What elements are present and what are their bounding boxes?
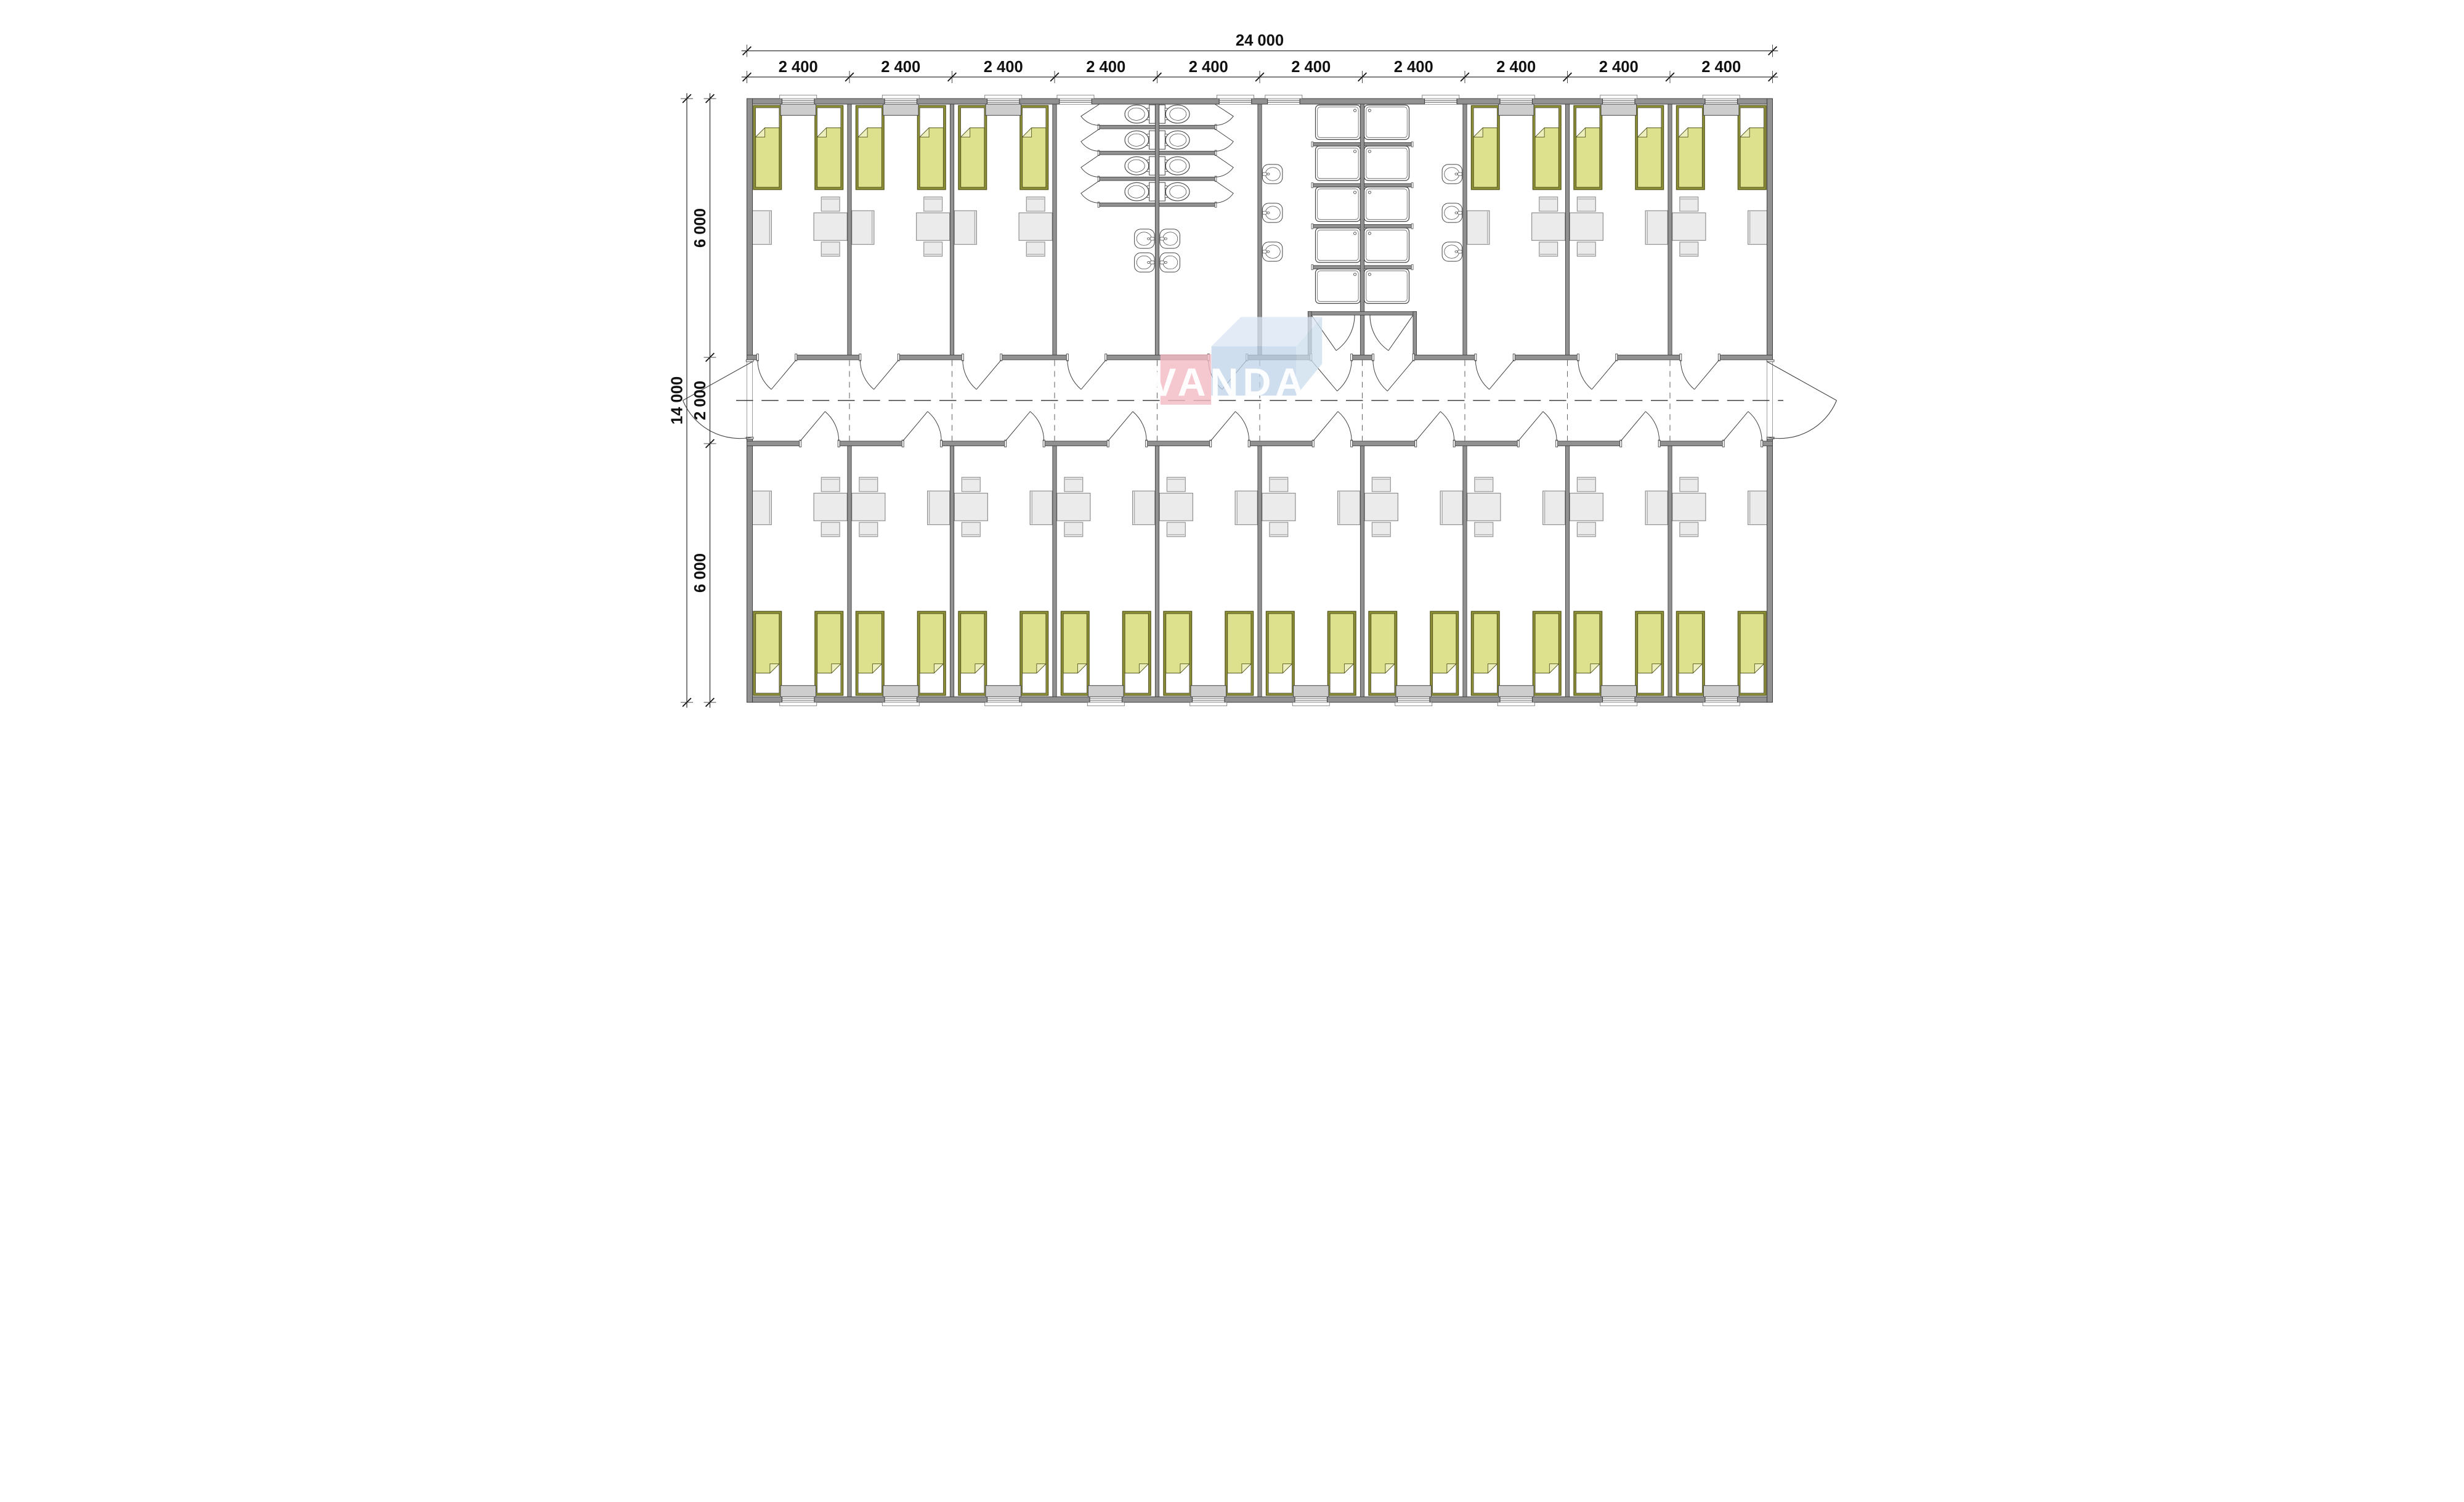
radiator [1601, 686, 1637, 697]
corridor-wall-segment [1249, 441, 1313, 446]
window-sill [882, 702, 919, 706]
toilet [1159, 182, 1189, 201]
door-leaf [903, 412, 928, 441]
door-leaf [771, 360, 796, 389]
radiator [986, 686, 1021, 697]
door-jamb [795, 354, 797, 361]
window [987, 99, 1020, 104]
corridor-wall-segment [899, 355, 963, 360]
table [1467, 493, 1501, 521]
door-jamb [1513, 354, 1515, 361]
desk [1645, 491, 1668, 525]
window-sill [882, 95, 919, 99]
table [1532, 213, 1565, 241]
window-sill [1292, 702, 1329, 706]
window-sill [1190, 702, 1227, 706]
partition-wall-bottom [1463, 441, 1467, 697]
shower-vestibule-wall [1308, 312, 1416, 315]
door-jamb [1146, 440, 1148, 447]
door-leaf [1313, 412, 1338, 441]
corridor-wall-segment [1352, 355, 1373, 360]
desk [1235, 491, 1257, 525]
dim-label-module: 2 400 [984, 59, 1023, 76]
wash-basin [1160, 253, 1180, 272]
door-leaf [1518, 412, 1543, 441]
window [987, 697, 1020, 702]
window-sill [780, 702, 817, 706]
dim-label-depth: 6 000 [692, 208, 709, 248]
table [1672, 493, 1706, 521]
window [1425, 99, 1457, 104]
door-jamb [859, 354, 861, 361]
wash-basin [1442, 164, 1462, 184]
door-jamb [1043, 440, 1045, 447]
shower-wall-cap [1311, 265, 1313, 270]
radiator [1191, 686, 1226, 697]
desk [954, 211, 976, 245]
shower-wall-cap [1411, 265, 1413, 270]
basin-tap [1263, 250, 1267, 253]
door-jamb [1658, 440, 1660, 447]
window [1295, 697, 1327, 702]
toilet-tank [1149, 156, 1156, 175]
toilet-tank [1159, 131, 1165, 149]
door-jamb [1722, 440, 1724, 447]
window [1705, 99, 1738, 104]
dim-label-total-depth: 14 000 [669, 376, 686, 424]
toilet-tank [1159, 182, 1165, 201]
radiator [883, 686, 919, 697]
window [1398, 697, 1430, 702]
table [1570, 493, 1603, 521]
radiator [883, 104, 919, 115]
shower-wall-cap [1411, 183, 1413, 188]
entrance-door-swing [1767, 400, 1837, 439]
door-leaf [976, 360, 1001, 389]
desk [1645, 211, 1668, 245]
window [1603, 697, 1635, 702]
table [1364, 493, 1398, 521]
door-leaf [800, 412, 825, 441]
spine-wall [1155, 104, 1159, 360]
table [917, 213, 950, 241]
door-jamb [1761, 440, 1763, 447]
toilet-tank [1149, 182, 1156, 201]
floor-plan-page: 24 0002 4002 4002 4002 4002 4002 4002 40… [616, 0, 1848, 751]
entrance-opening [1767, 362, 1773, 437]
door-jamb [898, 354, 899, 361]
window [1705, 697, 1738, 702]
door-swing [963, 360, 976, 389]
door-leaf [1081, 360, 1106, 389]
desk [852, 211, 874, 245]
shower-wall-cap [1311, 183, 1313, 188]
corridor-wall-segment [1762, 441, 1772, 446]
door-swing [860, 360, 873, 389]
toilet-tank [1149, 105, 1156, 123]
radiator [1704, 104, 1740, 115]
table [1570, 213, 1603, 241]
window-sill [1497, 95, 1534, 99]
door-jamb [1107, 440, 1109, 447]
door-jamb [1680, 354, 1682, 361]
spine-wall [1360, 104, 1364, 360]
radiator [1704, 686, 1740, 697]
toilet [1159, 131, 1189, 149]
door-jamb [838, 440, 840, 447]
corridor-wall-segment [1146, 441, 1210, 446]
door-jamb [1066, 354, 1068, 361]
window-sill [1703, 95, 1740, 99]
shower-vestibule-pier [1413, 312, 1417, 360]
window [885, 99, 917, 104]
window-sill [1600, 702, 1637, 706]
corridor-wall-segment [796, 355, 860, 360]
door-swing [1235, 412, 1249, 441]
table [1672, 213, 1706, 241]
corridor-wall-segment [1414, 355, 1476, 360]
partition-wall-top [1565, 104, 1569, 360]
dim-label-module: 2 400 [1189, 59, 1228, 76]
door-jamb [902, 440, 904, 447]
radiator [1499, 686, 1534, 697]
stall-door [1215, 129, 1233, 151]
toilet [1159, 105, 1189, 123]
vestibule-door-swing [1336, 315, 1355, 351]
table [814, 213, 847, 241]
door-jamb [1620, 440, 1622, 447]
desk [928, 491, 950, 525]
window-sill [1600, 95, 1637, 99]
stall-door [1081, 104, 1100, 125]
door-jamb [1248, 440, 1250, 447]
radiator [1294, 686, 1329, 697]
entrance-opening [747, 362, 753, 437]
window-sill [1703, 702, 1740, 706]
basin-tap [1458, 250, 1462, 253]
basin-tap [1160, 237, 1164, 240]
dim-label-total-width: 24 000 [1236, 32, 1284, 49]
window-sill [1422, 95, 1459, 99]
door-jamb [1312, 440, 1314, 447]
table [1262, 493, 1295, 521]
partition-wall-bottom [1258, 441, 1262, 697]
basin-tap [1160, 261, 1164, 264]
radiator [1499, 104, 1534, 115]
door-jamb [1415, 440, 1417, 447]
door-swing [1440, 412, 1454, 441]
door-swing [1645, 412, 1659, 441]
table [852, 493, 885, 521]
corridor-wall-segment [1454, 441, 1518, 446]
basin-tap [1263, 211, 1267, 214]
table [1159, 493, 1193, 521]
corridor-wall-segment [1616, 355, 1680, 360]
radiator [1088, 686, 1124, 697]
door-jamb [1616, 354, 1618, 361]
basin-tap [1458, 173, 1462, 176]
door-leaf [1210, 412, 1235, 441]
door-swing [1680, 360, 1694, 389]
door-jamb [962, 354, 963, 361]
partition-wall-bottom [1155, 441, 1159, 697]
door-leaf [1695, 360, 1719, 389]
corridor-wall-segment [1044, 441, 1108, 446]
dim-label-module: 2 400 [1599, 59, 1639, 76]
dim-label-module: 2 400 [1394, 59, 1433, 76]
door-jamb [1453, 440, 1455, 447]
entrance-jamb [1767, 360, 1774, 362]
door-leaf [1621, 412, 1645, 441]
partition-wall-bottom [848, 441, 851, 697]
partition-wall-top [950, 104, 954, 360]
partition-wall-bottom [950, 441, 954, 697]
dim-label-depth: 6 000 [692, 553, 709, 593]
door-swing [825, 412, 838, 441]
table [1057, 493, 1090, 521]
wash-basin [1135, 229, 1155, 248]
door-jamb [1351, 440, 1353, 447]
desk [1543, 491, 1565, 525]
radiator [780, 104, 816, 115]
window [1193, 697, 1225, 702]
logo-text: VANDA [1150, 360, 1308, 405]
shower-wall-cap [1411, 224, 1413, 229]
door-leaf [1005, 412, 1030, 441]
window-sill [1087, 702, 1124, 706]
corridor-wall-segment [747, 355, 758, 360]
door-leaf [1724, 412, 1748, 441]
door-swing [1068, 360, 1081, 389]
corridor-wall-segment [1719, 355, 1773, 360]
door-swing [1543, 412, 1557, 441]
window-sill [1217, 95, 1254, 99]
window-sill [1057, 95, 1094, 99]
dim-label-module: 2 400 [1496, 59, 1536, 76]
door-swing [1578, 360, 1592, 389]
door-swing [928, 412, 941, 441]
door-leaf [1387, 360, 1413, 391]
basin-tap [1263, 173, 1267, 176]
window-sill [780, 95, 817, 99]
toilet-tank [1159, 105, 1165, 123]
door-jamb [800, 440, 801, 447]
wash-basin [1262, 203, 1283, 222]
dim-label-depth: 2 000 [692, 381, 709, 420]
door-leaf [1592, 360, 1616, 389]
stall-door [1081, 155, 1100, 177]
door-jamb [1517, 440, 1519, 447]
desk [1133, 491, 1155, 525]
toilet-tank [1149, 131, 1156, 149]
corridor-wall-segment [747, 441, 801, 446]
corridor-wall-segment [1352, 441, 1416, 446]
door-jamb [1000, 354, 1002, 361]
corridor-wall-segment [1514, 355, 1578, 360]
door-swing [1475, 360, 1489, 389]
window-sill [1265, 95, 1302, 99]
window-sill [1395, 702, 1432, 706]
door-swing [758, 360, 771, 389]
door-jamb [1372, 354, 1374, 361]
stall-door [1215, 181, 1233, 203]
door-jamb [1105, 354, 1107, 361]
door-leaf [1416, 412, 1440, 441]
door-jamb [941, 440, 942, 447]
partition-wall-bottom [1565, 441, 1569, 697]
stall-door [1215, 104, 1233, 125]
partition-wall-top [1463, 104, 1467, 360]
window [1500, 99, 1533, 104]
desk [1030, 491, 1052, 525]
door-jamb [1718, 354, 1720, 361]
door-swing [1373, 360, 1388, 391]
partition-wall-bottom [1668, 441, 1672, 697]
window-sill [985, 702, 1022, 706]
stall-door [1081, 181, 1100, 203]
window [782, 697, 815, 702]
window [1268, 99, 1300, 104]
door-swing [1030, 412, 1044, 441]
partition-wall-top [1668, 104, 1672, 360]
partition-wall-bottom [1053, 441, 1056, 697]
desk [1338, 491, 1360, 525]
door-swing [1748, 412, 1762, 441]
door-jamb [1005, 440, 1007, 447]
corridor-wall-segment [941, 441, 1005, 446]
wash-basin [1160, 229, 1180, 248]
basin-tap [1458, 211, 1462, 214]
partition-wall-bottom [1360, 441, 1364, 697]
dim-label-module: 2 400 [881, 59, 920, 76]
wash-basin [1262, 164, 1283, 184]
window [1500, 697, 1533, 702]
door-jamb [1577, 354, 1579, 361]
table [814, 493, 847, 521]
door-jamb [1556, 440, 1558, 447]
wash-basin [1442, 203, 1462, 222]
door-jamb [756, 354, 758, 361]
floor-plan-drawing: 24 0002 4002 4002 4002 4002 4002 4002 40… [616, 0, 1848, 751]
wash-basin [1442, 242, 1462, 261]
toilet [1125, 105, 1155, 123]
stall-door [1081, 129, 1100, 151]
wash-basin [1262, 242, 1283, 261]
fixtures-layer [1100, 105, 1462, 303]
window [782, 99, 815, 104]
window [1603, 99, 1635, 104]
window [885, 697, 917, 702]
door-swing [1338, 412, 1352, 441]
dim-label-module: 2 400 [1701, 59, 1741, 76]
toilet [1125, 131, 1155, 149]
basin-tap [1150, 261, 1154, 264]
basin-tap [1150, 237, 1154, 240]
wash-basin [1135, 253, 1155, 272]
radiator [1601, 104, 1637, 115]
corridor-wall-segment [1660, 441, 1724, 446]
desk [1440, 491, 1462, 525]
shower-wall-cap [1411, 142, 1413, 147]
dim-label-module: 2 400 [1291, 59, 1331, 76]
toilet-tank [1159, 156, 1165, 175]
corridor-wall-segment [1557, 441, 1621, 446]
door-jamb [1351, 354, 1353, 361]
door-jamb [1412, 354, 1414, 361]
vestibule-door-swing [1370, 315, 1388, 351]
window [1219, 99, 1252, 104]
radiator [986, 104, 1021, 115]
stall-door [1215, 155, 1233, 177]
partition-wall-top [848, 104, 851, 360]
shower-wall-cap [1311, 142, 1313, 147]
door-jamb [1475, 354, 1477, 361]
window-sill [985, 95, 1022, 99]
window [1060, 99, 1092, 104]
door-swing [1337, 360, 1352, 391]
dim-label-module: 2 400 [1086, 59, 1125, 76]
door-swing [1133, 412, 1146, 441]
toilet [1125, 182, 1155, 201]
toilet [1125, 156, 1155, 175]
radiator [1396, 686, 1432, 697]
table [954, 493, 987, 521]
table [1019, 213, 1052, 241]
desk [1467, 211, 1489, 245]
shower-wall-cap [1311, 224, 1313, 229]
door-jamb [1210, 440, 1212, 447]
corridor-wall-segment [1001, 355, 1068, 360]
dim-label-module: 2 400 [779, 59, 818, 76]
vestibule-door-leaf [1388, 315, 1413, 351]
window-sill [1497, 702, 1534, 706]
door-leaf [874, 360, 899, 389]
logo-layer: VANDA [1150, 317, 1322, 405]
toilet [1159, 156, 1189, 175]
radiator [780, 686, 816, 697]
entrance-door-leaf [1767, 362, 1837, 400]
partition-wall-top [1053, 104, 1056, 360]
corridor-wall-segment [839, 441, 903, 446]
door-leaf [1108, 412, 1133, 441]
door-leaf [1489, 360, 1514, 389]
window [1090, 697, 1122, 702]
